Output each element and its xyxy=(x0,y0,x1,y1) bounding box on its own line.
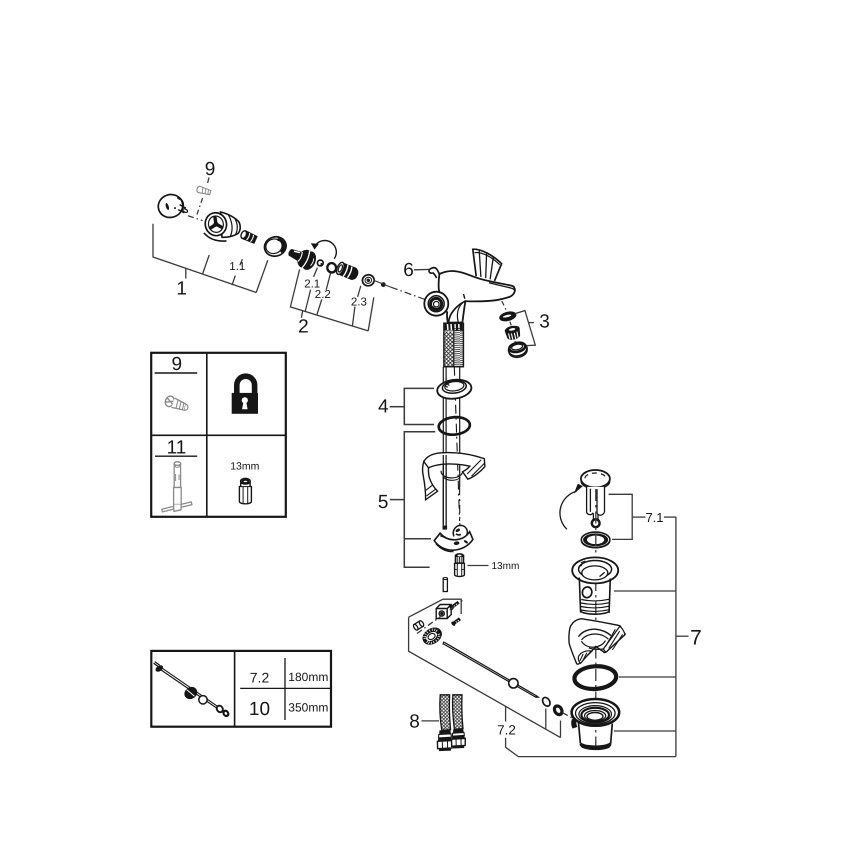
svg-text:7.2: 7.2 xyxy=(497,723,516,738)
svg-text:9: 9 xyxy=(205,159,216,180)
svg-text:9: 9 xyxy=(172,354,183,375)
svg-text:10: 10 xyxy=(249,699,270,720)
svg-text:7: 7 xyxy=(690,627,702,650)
svg-text:350mm: 350mm xyxy=(288,700,328,714)
svg-text:1: 1 xyxy=(176,279,187,300)
svg-text:13mm: 13mm xyxy=(492,561,520,572)
svg-text:7.1: 7.1 xyxy=(645,510,663,525)
svg-text:3: 3 xyxy=(539,312,550,333)
svg-text:2.3: 2.3 xyxy=(351,296,367,308)
svg-text:13mm: 13mm xyxy=(230,461,259,473)
svg-text:8: 8 xyxy=(409,711,420,732)
svg-text:5: 5 xyxy=(378,492,389,513)
svg-text:4: 4 xyxy=(378,397,389,418)
svg-text:7.2: 7.2 xyxy=(250,669,270,685)
svg-text:2: 2 xyxy=(298,317,309,338)
svg-text:2.2: 2.2 xyxy=(315,289,331,301)
svg-text:6: 6 xyxy=(403,260,414,281)
svg-text:11: 11 xyxy=(167,438,187,459)
svg-text:180mm: 180mm xyxy=(288,670,328,684)
svg-text:1.1: 1.1 xyxy=(229,261,245,273)
